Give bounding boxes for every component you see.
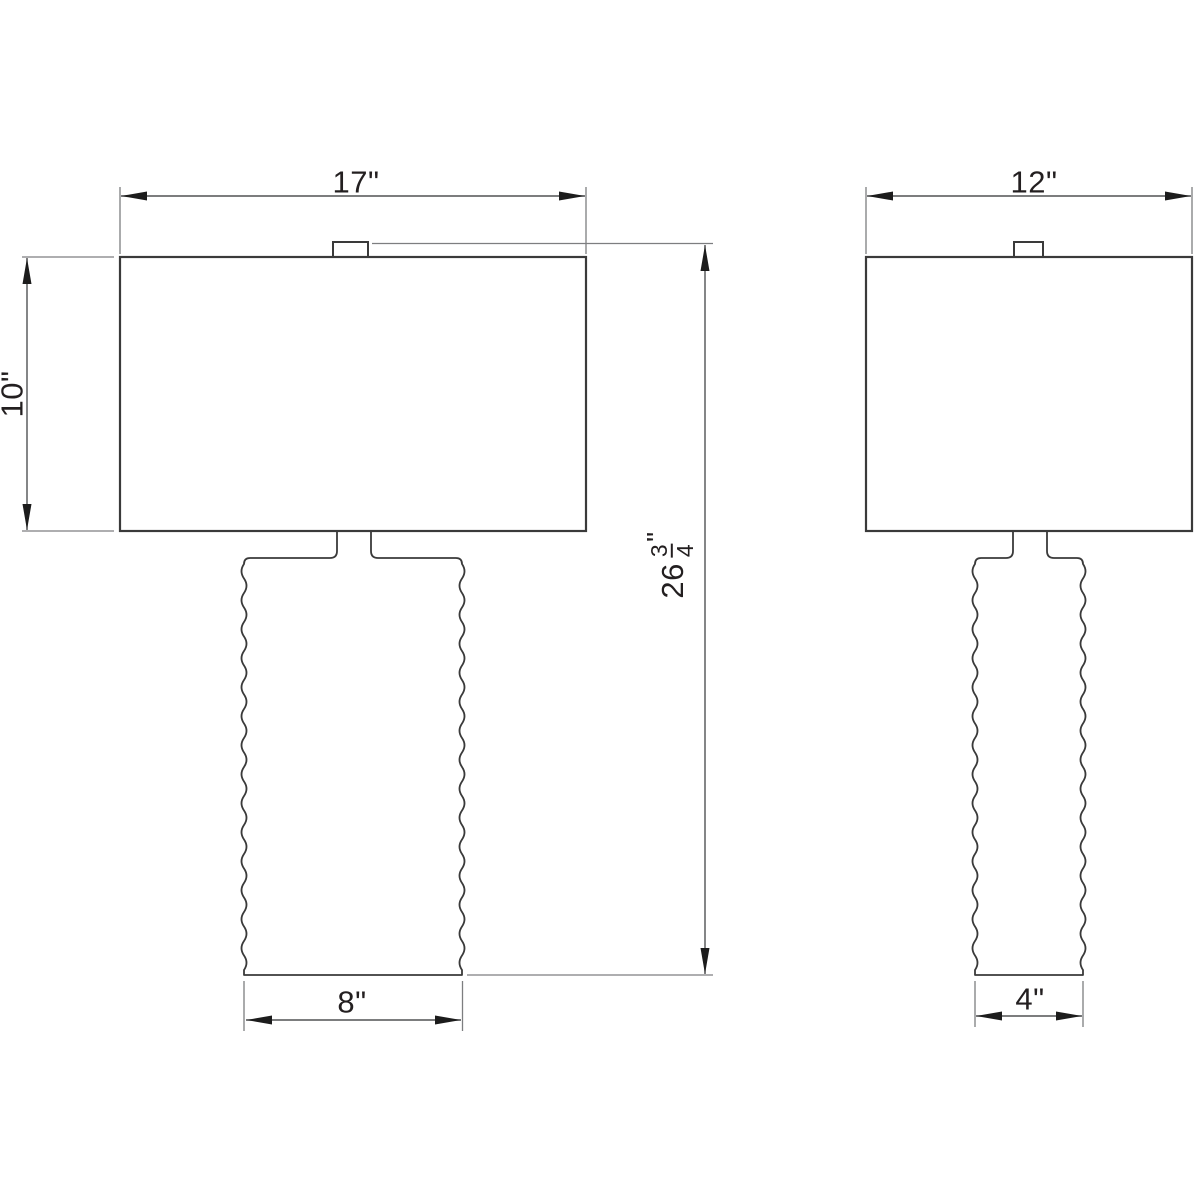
fraction-denominator: 4 <box>675 544 696 557</box>
side-finial <box>1014 242 1043 257</box>
arrowhead-right-icon <box>559 192 585 201</box>
arrowhead-up-icon <box>23 258 32 284</box>
side-view <box>866 187 1192 1027</box>
front-shade-height-label: 10" <box>0 371 28 418</box>
overall-height-fraction: 3 4 <box>649 544 695 557</box>
arrowhead-left-icon <box>976 1012 1002 1021</box>
side-lamp-body <box>973 531 1086 975</box>
front-lamp-body <box>242 531 465 975</box>
arrowhead-right-icon <box>1165 192 1191 201</box>
side-base-width-label: 4" <box>1015 984 1044 1015</box>
technical-drawing-canvas: 17" 10" 8" 26 3 4 " 12" 4" <box>0 0 1200 1200</box>
arrowhead-down-icon <box>701 948 710 974</box>
front-view <box>22 187 713 1031</box>
arrowhead-up-icon <box>701 245 710 271</box>
overall-height-value: 26 3 4 " <box>649 531 695 598</box>
front-shade-height-dimension <box>22 257 114 531</box>
arrowhead-left-icon <box>121 192 147 201</box>
overall-height-whole: 26 <box>657 563 688 598</box>
arrowhead-left-icon <box>246 1016 272 1025</box>
front-base-width-label: 8" <box>337 987 366 1018</box>
front-shade-outline <box>120 257 586 531</box>
arrowhead-left-icon <box>867 192 893 201</box>
front-finial <box>333 242 368 257</box>
front-shade-width-label: 17" <box>333 167 380 198</box>
inches-mark: " <box>643 531 671 541</box>
arrowhead-right-icon <box>435 1016 461 1025</box>
side-shade-width-label: 12" <box>1011 167 1058 198</box>
side-shade-outline <box>866 257 1192 531</box>
arrowhead-down-icon <box>23 504 32 530</box>
arrowhead-right-icon <box>1056 1012 1082 1021</box>
overall-height-label: 26 3 4 " <box>649 531 695 598</box>
fraction-numerator: 3 <box>649 544 670 557</box>
